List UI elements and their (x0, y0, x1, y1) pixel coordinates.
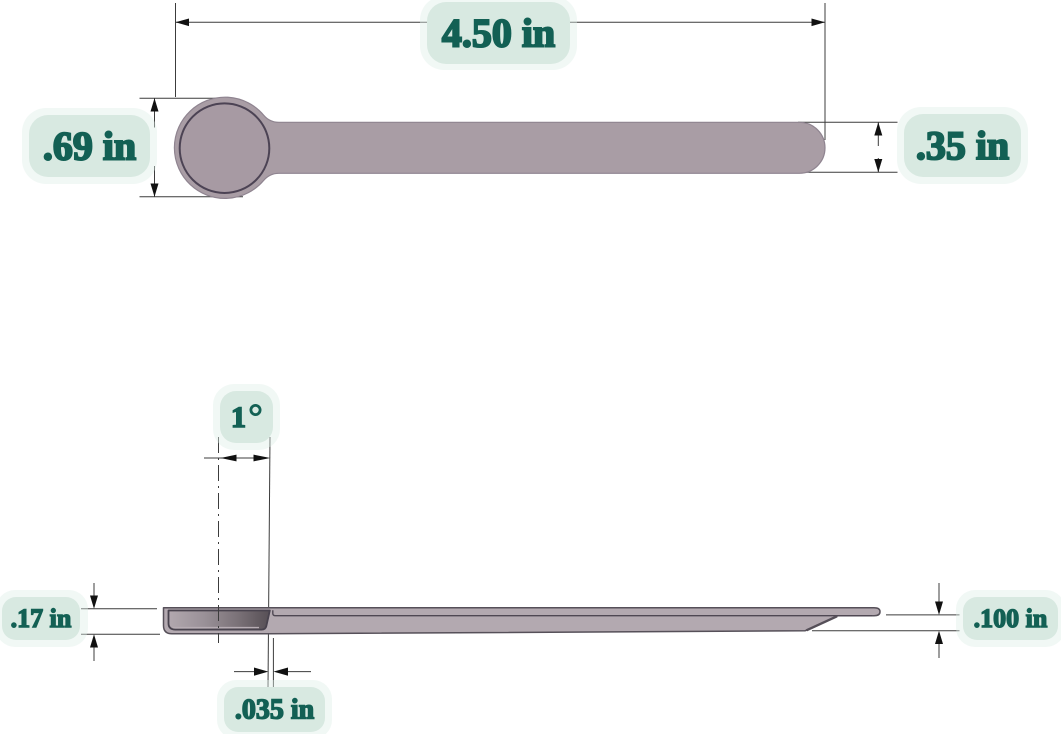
svg-text:4.50 in: 4.50 in (442, 10, 555, 55)
svg-text:.035 in: .035 in (235, 695, 315, 726)
svg-text:.35 in: .35 in (916, 123, 1009, 168)
svg-text:1: 1 (231, 401, 246, 434)
svg-text:.69 in: .69 in (43, 123, 136, 168)
svg-text:.100 in: .100 in (974, 604, 1048, 633)
svg-text:.17 in: .17 in (11, 604, 72, 633)
